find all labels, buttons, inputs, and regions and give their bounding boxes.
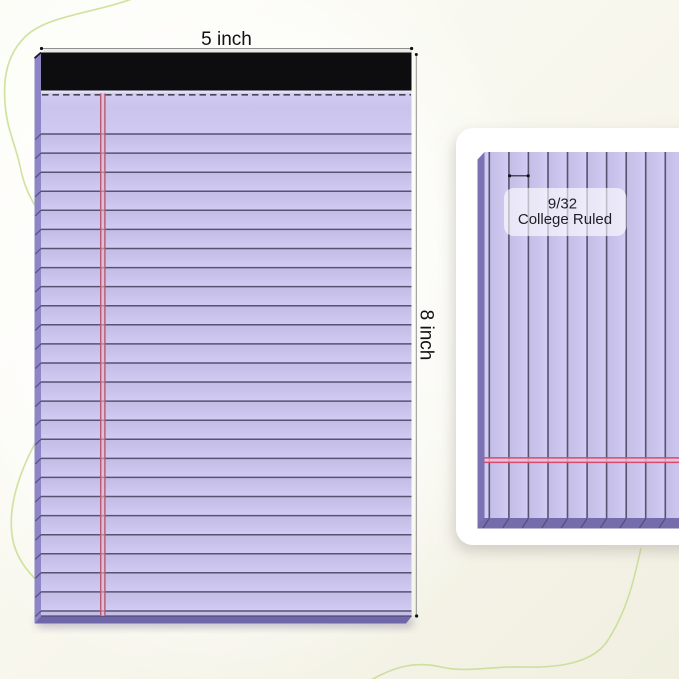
svg-text:9/32: 9/32	[548, 196, 577, 213]
svg-text:8 inch: 8 inch	[416, 310, 437, 361]
svg-text:College Ruled: College Ruled	[518, 211, 612, 228]
svg-text:5 inch: 5 inch	[201, 29, 252, 50]
